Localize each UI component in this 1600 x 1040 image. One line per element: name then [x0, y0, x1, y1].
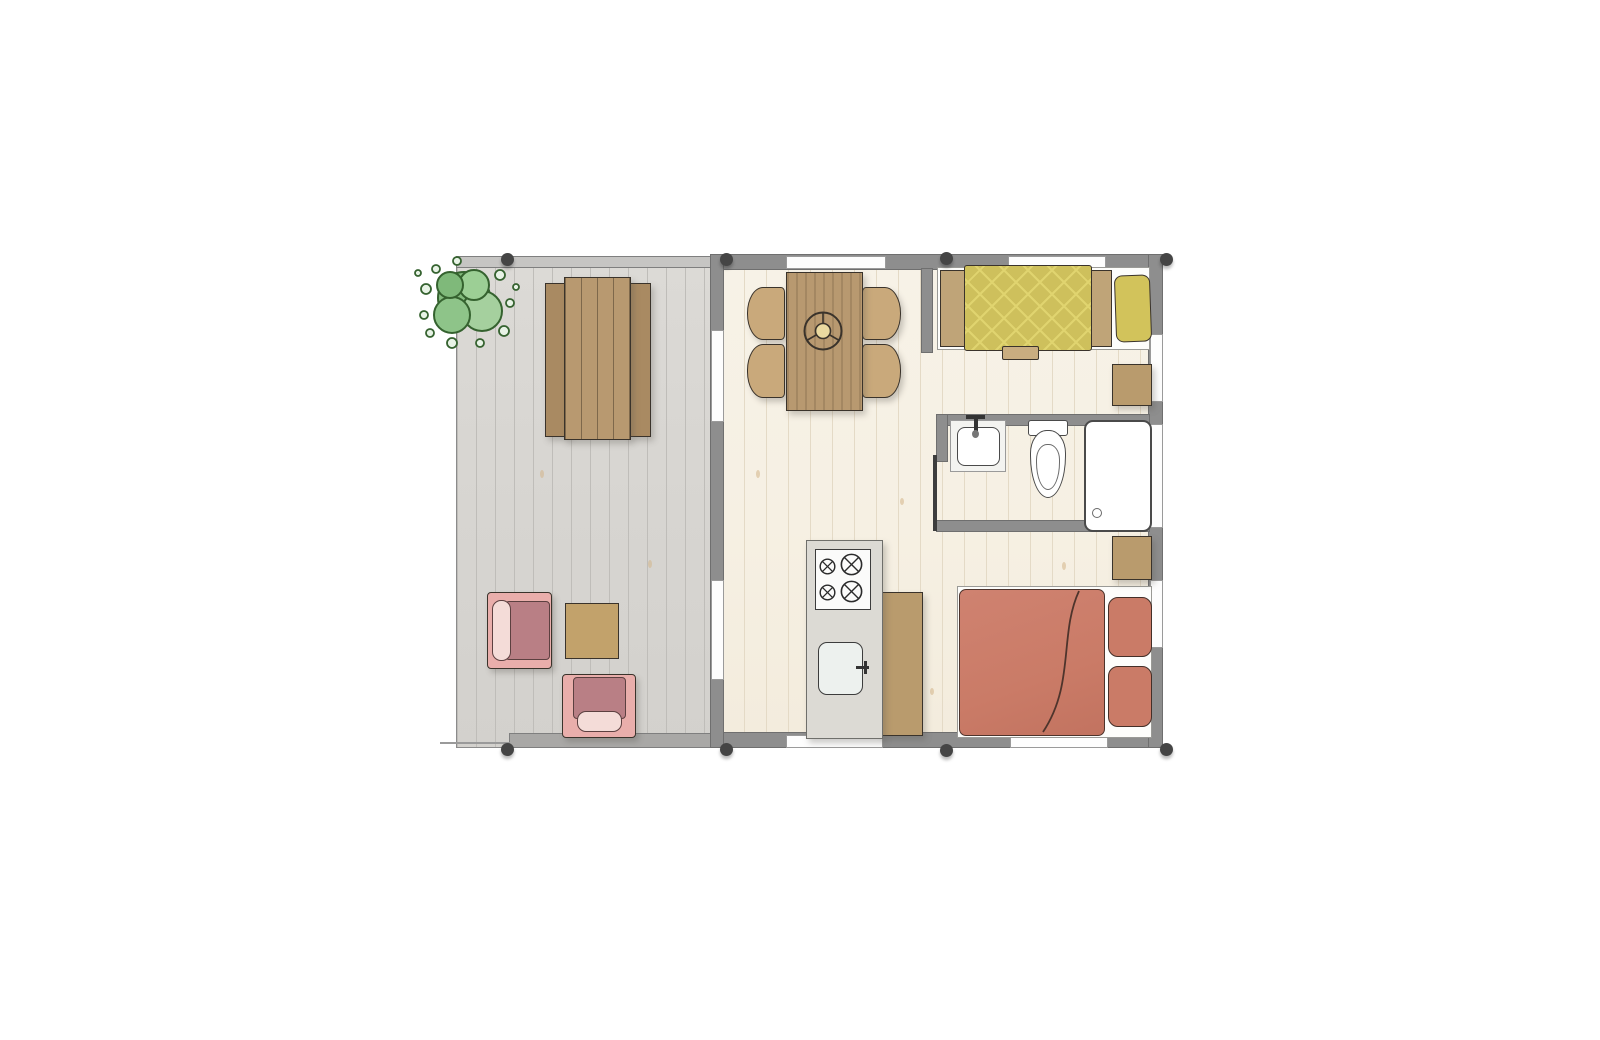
post-se — [1160, 743, 1173, 756]
dining-chair-bl — [747, 344, 785, 398]
deck-edge-line — [440, 742, 510, 744]
window-north-dining — [786, 256, 886, 269]
partition-bed-niche — [921, 268, 933, 353]
kitchen-faucet-handle — [864, 661, 867, 674]
floor-knot — [930, 688, 934, 695]
burner-small-1 — [819, 558, 836, 575]
dining-chair-tr — [862, 287, 901, 340]
floor-knot — [900, 498, 904, 505]
armchair-1-seat — [505, 601, 550, 660]
bathroom-door — [933, 455, 937, 531]
floor-knot — [1062, 562, 1066, 570]
side-table — [565, 603, 619, 659]
floor-plan-canvas — [0, 0, 1600, 1040]
post-n2 — [940, 252, 953, 265]
dining-chair-br — [862, 344, 901, 398]
armchair-1-cushion — [492, 600, 511, 661]
burner-small-2 — [819, 584, 836, 601]
floor-knot — [756, 470, 760, 478]
table-centerpiece — [803, 311, 843, 351]
single-bed-pillow — [1114, 274, 1152, 342]
bathroom-wall-west — [936, 414, 948, 462]
picnic-table-top — [564, 277, 631, 440]
picnic-bench-right — [628, 283, 651, 437]
floor-knot — [540, 470, 544, 478]
single-bed-drawer-pull — [1002, 346, 1039, 360]
nightstand-upper — [1112, 364, 1152, 406]
double-bed-pillow-1 — [1108, 597, 1152, 657]
sink-faucet-stem — [974, 415, 978, 431]
sliding-door-deck-lower — [711, 580, 724, 680]
burner-large-2 — [840, 580, 863, 603]
kitchen-counter — [880, 592, 923, 736]
post-s1 — [720, 743, 733, 756]
kitchen-faucet — [856, 666, 869, 669]
post-sw — [501, 743, 514, 756]
post-nw — [501, 253, 514, 266]
dining-chair-tl — [747, 287, 785, 340]
armchair-2-cushion — [577, 711, 622, 732]
post-n1 — [720, 253, 733, 266]
floor-knot — [648, 560, 652, 568]
post-s2 — [940, 744, 953, 757]
burner-large-1 — [840, 553, 863, 576]
sliding-door-deck-upper — [711, 330, 724, 422]
shower-drain — [1092, 508, 1102, 518]
double-bed-pillow-2 — [1108, 666, 1152, 727]
duvet-fold — [959, 589, 1103, 734]
nightstand-lower — [1112, 536, 1152, 580]
sink-drain — [972, 430, 979, 438]
single-bed-quilt — [964, 265, 1092, 351]
post-ne — [1160, 253, 1173, 266]
bush — [412, 253, 512, 348]
